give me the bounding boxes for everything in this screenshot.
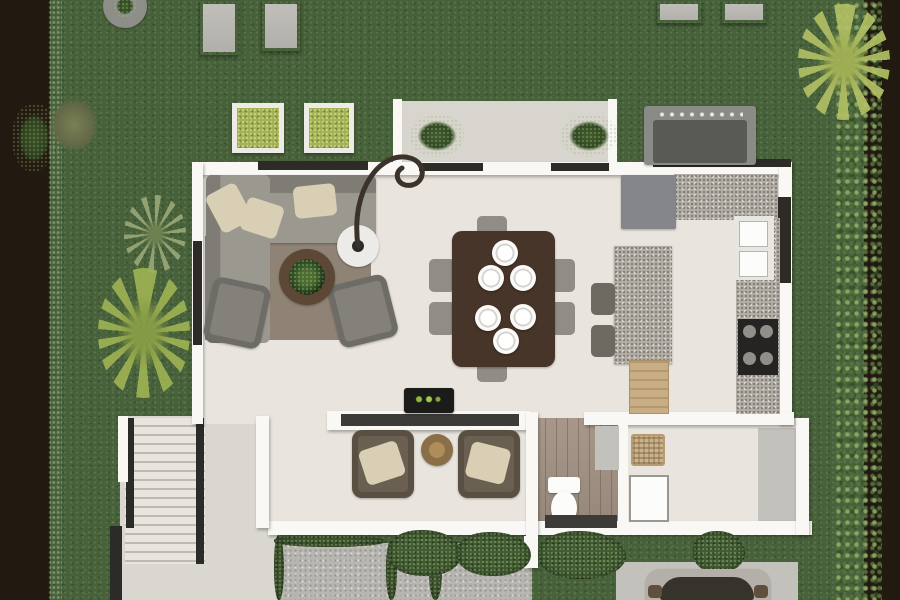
bar-stool-1 <box>591 283 615 315</box>
sun-lounger-3 <box>656 0 702 24</box>
hedge-clump-2 <box>457 532 531 576</box>
sun-lounger-4 <box>721 0 767 24</box>
palm-left <box>124 195 186 273</box>
hedge-border-vertical <box>274 535 284 600</box>
arc-lamp-base-dot <box>352 240 364 252</box>
window-top-living <box>258 161 368 170</box>
car-mirror-right <box>754 585 768 598</box>
plate-6 <box>493 328 519 354</box>
wall-utility <box>618 418 628 526</box>
kitchen-counter-top <box>674 174 778 220</box>
tv <box>404 388 454 413</box>
tv-console-top <box>341 414 519 426</box>
wall-stub-left <box>118 416 128 482</box>
kitchen-island <box>614 246 672 364</box>
sink-basin-b <box>739 251 768 277</box>
shower-tray <box>595 426 619 470</box>
patio-door-left <box>419 163 483 171</box>
washer <box>629 475 669 522</box>
grill-knobs <box>657 111 743 118</box>
hedge-clump-4 <box>693 531 745 573</box>
palm-right <box>798 4 890 120</box>
plate-3 <box>510 265 536 291</box>
coffee-table-plant <box>289 259 325 295</box>
plate-4 <box>475 305 501 331</box>
wall-right-lower <box>796 418 809 535</box>
shower-pad <box>758 428 796 526</box>
laundry-basket <box>631 434 665 466</box>
bar-stool-2 <box>591 325 615 357</box>
car-mirror-left <box>648 585 662 598</box>
patio-edge-left <box>393 99 402 167</box>
stove-burner-4 <box>760 352 773 365</box>
sun-lounger-2 <box>261 0 301 52</box>
sink-basin-a <box>739 221 768 247</box>
hedge-clump-1 <box>388 530 462 576</box>
staircase <box>125 418 205 564</box>
wardrobe <box>629 360 669 414</box>
sofa-pillow-3 <box>292 183 337 219</box>
plate-5 <box>510 304 536 330</box>
hedge-clump-3 <box>538 531 626 579</box>
plate-2 <box>478 265 504 291</box>
olive-bush <box>40 88 108 162</box>
fridge <box>621 175 676 229</box>
patio-door-right <box>551 163 609 171</box>
planter-box-2 <box>304 103 354 153</box>
wall-mid-left <box>256 416 269 528</box>
stove-burner-3 <box>743 352 756 365</box>
floorplan-canvas <box>0 0 900 600</box>
retaining-wall-dark <box>110 526 122 600</box>
sun-lounger-1 <box>199 0 239 56</box>
fern-left <box>98 268 190 398</box>
hedge-border-left <box>274 535 386 547</box>
car-windshield <box>660 577 754 600</box>
plate-1 <box>492 240 518 266</box>
stove-burner-1 <box>743 325 756 338</box>
bath-vanity <box>545 515 617 528</box>
stove-burner-2 <box>760 325 773 338</box>
stair-rail-right <box>196 418 204 564</box>
planter-box-1 <box>232 103 284 153</box>
grill-lid <box>653 120 747 163</box>
side-table-center <box>429 442 445 458</box>
window-left <box>193 241 202 345</box>
